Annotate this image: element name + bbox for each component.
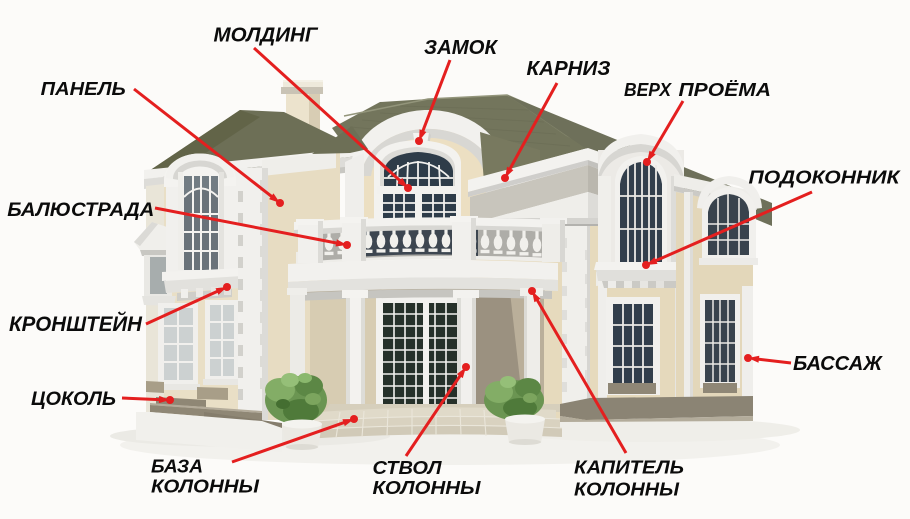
- svg-text:ЦОКОЛЬ: ЦОКОЛЬ: [31, 388, 116, 410]
- svg-text:СТВОЛ: СТВОЛ: [373, 457, 443, 478]
- svg-text:КАРНИЗ: КАРНИЗ: [527, 58, 611, 80]
- svg-text:ПОДОКОННИК: ПОДОКОННИК: [749, 168, 902, 188]
- svg-text:КРОНШТЕЙН: КРОНШТЕЙН: [9, 312, 143, 336]
- svg-text:ЗАМОК: ЗАМОК: [424, 36, 498, 59]
- svg-text:БАЗА: БАЗА: [151, 456, 203, 477]
- svg-text:КОЛОННЫ: КОЛОННЫ: [574, 480, 680, 500]
- svg-text:БАССАЖ: БАССАЖ: [793, 353, 883, 375]
- svg-text:МОЛДИНГ: МОЛДИНГ: [214, 24, 319, 47]
- svg-text:КОЛОННЫ: КОЛОННЫ: [373, 477, 482, 498]
- svg-text:КОЛОННЫ: КОЛОННЫ: [151, 476, 260, 497]
- svg-text:БАЛЮСТРАДА: БАЛЮСТРАДА: [7, 200, 154, 221]
- svg-text:КАПИТЕЛЬ: КАПИТЕЛЬ: [574, 458, 684, 478]
- svg-text:ВЕРХ: ВЕРХ: [624, 80, 672, 100]
- svg-text:ПАНЕЛЬ: ПАНЕЛЬ: [41, 79, 126, 99]
- svg-text:ПРОЁМА: ПРОЁМА: [679, 80, 772, 100]
